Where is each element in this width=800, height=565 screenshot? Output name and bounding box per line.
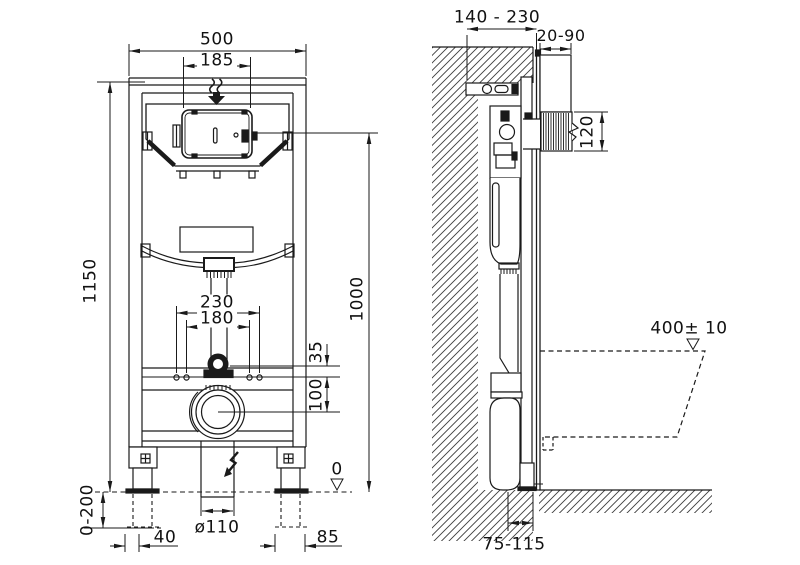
water-supply-icon xyxy=(208,79,225,105)
dim-panel-center-height: 1000 xyxy=(350,276,367,321)
dim-flush-unit-height: 120 xyxy=(580,115,597,149)
dim-frame-depth: 140 - 230 xyxy=(454,10,540,27)
floor-level-triangle xyxy=(331,479,343,490)
dim-leg-adjustment: 0-200 xyxy=(80,484,97,536)
label-floor-level: 0 xyxy=(331,462,342,479)
dim-plate-projection: 20-90 xyxy=(537,28,586,44)
dim-bowl-rim-height: 400± 10 xyxy=(650,321,727,338)
dim-outlet-offset: 75-115 xyxy=(482,537,545,554)
side-view xyxy=(432,29,712,541)
dim-bolt-spacing-inner: 180 xyxy=(197,311,237,328)
toilet-bowl-outline xyxy=(540,351,705,450)
dim-right-foot-offset: 85 xyxy=(317,530,340,547)
drawing-canvas xyxy=(0,0,800,565)
front-cistern xyxy=(143,104,292,178)
dim-drain-offset: 100 xyxy=(309,378,326,412)
dim-frame-width: 500 xyxy=(200,32,234,49)
bowl-level-triangle xyxy=(687,339,699,350)
dim-left-foot-offset: 40 xyxy=(154,530,177,547)
dim-inlet-offset: 35 xyxy=(309,341,326,364)
technical-drawing-page: 500 185 1150 1000 230 180 35 100 0 0-200… xyxy=(0,0,800,565)
dim-drain-diameter: ø110 xyxy=(192,520,243,537)
floor-section xyxy=(539,490,712,513)
dim-frame-height: 1150 xyxy=(83,258,100,303)
dim-access-panel-width: 185 xyxy=(197,53,237,70)
